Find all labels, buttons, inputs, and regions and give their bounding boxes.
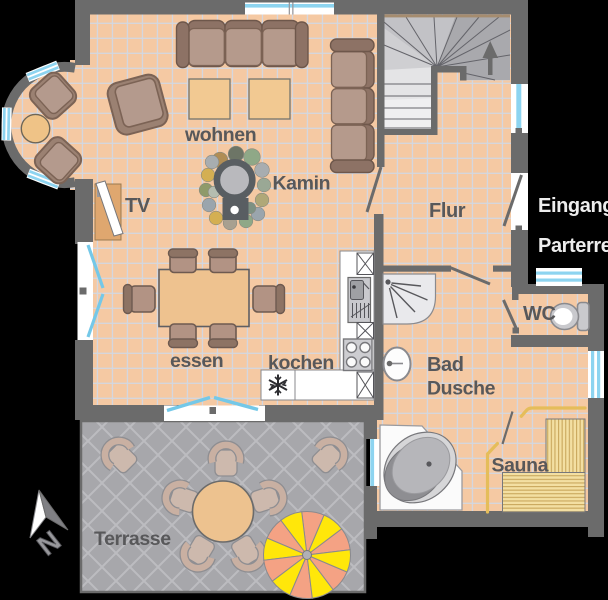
svg-text:WC: WC <box>523 303 556 325</box>
svg-text:kochen: kochen <box>268 352 334 374</box>
svg-text:wohnen: wohnen <box>184 124 256 146</box>
svg-text:Eingang: Eingang <box>538 195 608 217</box>
svg-text:Dusche: Dusche <box>427 378 496 400</box>
svg-text:essen: essen <box>170 350 223 372</box>
svg-text:Parterre: Parterre <box>538 235 608 257</box>
svg-text:Kamin: Kamin <box>273 173 331 195</box>
svg-text:Flur: Flur <box>429 200 466 222</box>
svg-text:Bad: Bad <box>427 354 464 376</box>
svg-text:TV: TV <box>125 195 151 217</box>
svg-text:Sauna: Sauna <box>492 455 549 477</box>
svg-text:Terrasse: Terrasse <box>94 528 171 550</box>
